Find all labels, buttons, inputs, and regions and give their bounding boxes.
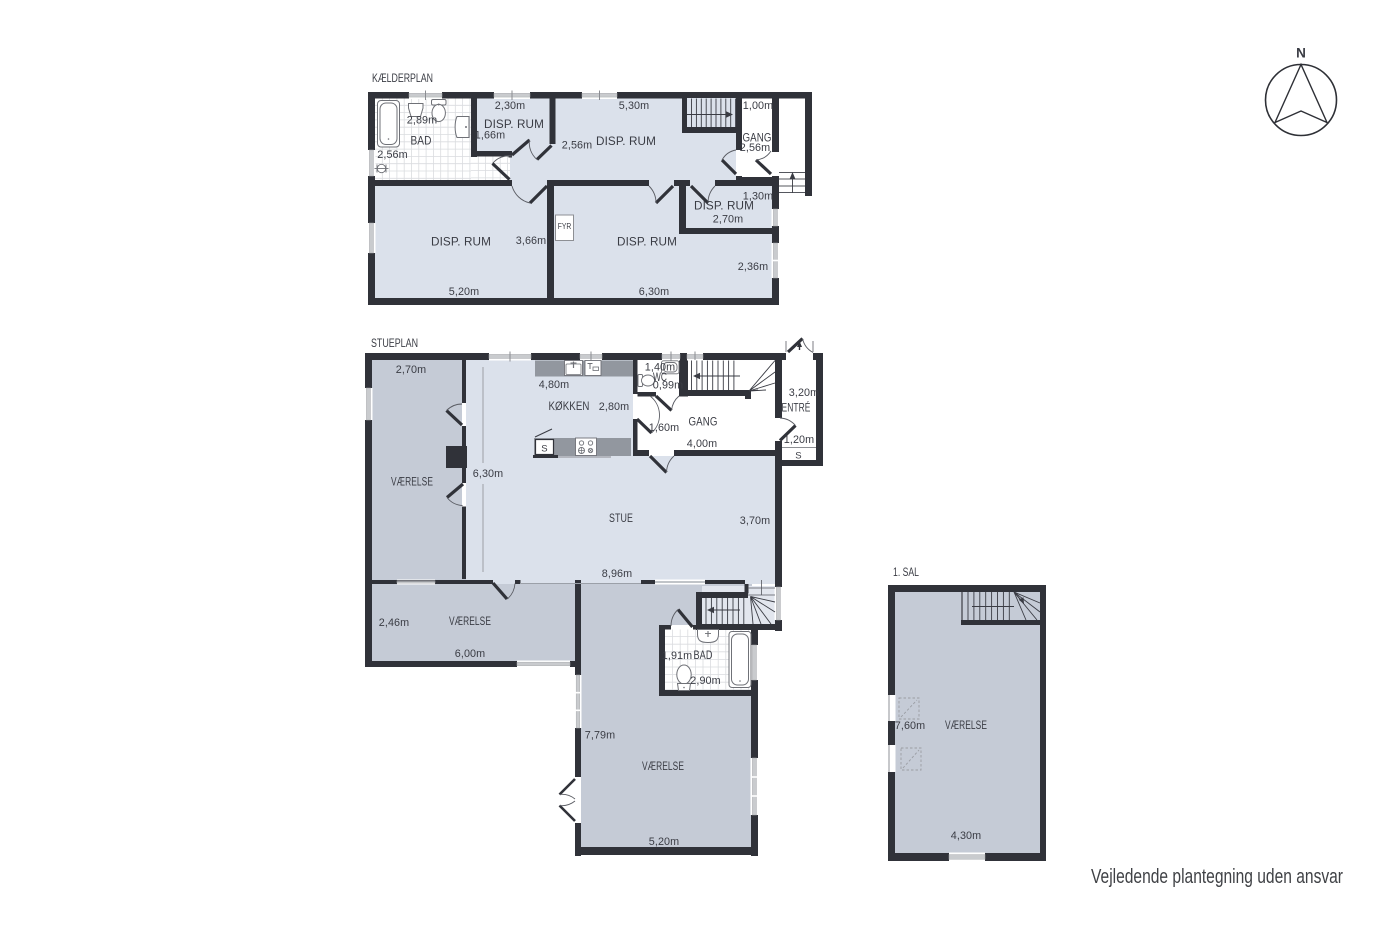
svg-text:S: S	[795, 451, 801, 462]
svg-text:ENTRÉ: ENTRÉ	[782, 402, 811, 415]
svg-text:VÆRELSE: VÆRELSE	[945, 720, 987, 732]
svg-text:VÆRELSE: VÆRELSE	[642, 761, 684, 773]
svg-text:5,20m: 5,20m	[649, 836, 680, 848]
svg-text:2,70m: 2,70m	[713, 214, 744, 226]
svg-text:1. SAL: 1. SAL	[893, 565, 919, 579]
svg-text:1,91m: 1,91m	[662, 650, 693, 662]
svg-text:2,56m: 2,56m	[562, 140, 593, 152]
svg-text:7,79m: 7,79m	[585, 730, 616, 742]
svg-text:KÆLDERPLAN: KÆLDERPLAN	[372, 71, 433, 85]
svg-text:3,66m: 3,66m	[516, 235, 547, 247]
svg-text:2,56m: 2,56m	[377, 149, 408, 161]
svg-text:DISP. RUM: DISP. RUM	[596, 136, 656, 148]
svg-text:Vejledende plantegning uden an: Vejledende plantegning uden ansvar	[1091, 865, 1343, 888]
svg-text:KØKKEN: KØKKEN	[549, 401, 590, 413]
svg-text:DISP. RUM: DISP. RUM	[617, 237, 677, 249]
svg-text:BAD: BAD	[411, 136, 432, 148]
svg-text:STUE: STUE	[609, 513, 633, 525]
svg-text:GANG: GANG	[689, 417, 718, 429]
svg-text:2,89m: 2,89m	[407, 115, 438, 127]
svg-text:S: S	[541, 444, 547, 455]
svg-text:4,00m: 4,00m	[687, 438, 718, 450]
svg-text:2,70m: 2,70m	[396, 364, 427, 376]
svg-text:8,96m: 8,96m	[602, 568, 633, 580]
svg-text:1,00m: 1,00m	[743, 100, 774, 112]
svg-text:6,30m: 6,30m	[473, 468, 504, 480]
svg-text:1,60m: 1,60m	[649, 422, 680, 434]
svg-text:7,60m: 7,60m	[895, 720, 926, 732]
svg-text:6,00m: 6,00m	[455, 648, 486, 660]
svg-text:4,80m: 4,80m	[539, 379, 570, 391]
svg-text:5,30m: 5,30m	[619, 100, 650, 112]
svg-text:2,36m: 2,36m	[738, 261, 769, 273]
svg-text:VÆRELSE: VÆRELSE	[449, 616, 491, 628]
svg-text:2,90m: 2,90m	[690, 675, 721, 687]
svg-text:DISP. RUM: DISP. RUM	[431, 237, 491, 249]
svg-text:2,30m: 2,30m	[495, 100, 526, 112]
svg-text:BAD: BAD	[694, 650, 713, 662]
svg-text:DISP. RUM: DISP. RUM	[694, 201, 754, 213]
svg-text:3,70m: 3,70m	[740, 515, 771, 527]
svg-text:1,66m: 1,66m	[475, 130, 506, 142]
svg-text:2,80m: 2,80m	[599, 401, 630, 413]
svg-text:4,30m: 4,30m	[951, 830, 982, 842]
svg-text:FYR: FYR	[558, 222, 572, 231]
svg-text:2,56m: 2,56m	[740, 142, 771, 154]
svg-text:STUEPLAN: STUEPLAN	[371, 336, 418, 350]
svg-text:3,20m: 3,20m	[789, 387, 820, 399]
svg-text:6,30m: 6,30m	[639, 286, 670, 298]
svg-text:5,20m: 5,20m	[449, 286, 480, 298]
svg-text:0,99m: 0,99m	[653, 380, 684, 392]
svg-text:N: N	[1296, 46, 1306, 61]
svg-text:1,20m: 1,20m	[784, 434, 815, 446]
svg-text:2,46m: 2,46m	[379, 617, 410, 629]
svg-text:VÆRELSE: VÆRELSE	[391, 477, 433, 489]
